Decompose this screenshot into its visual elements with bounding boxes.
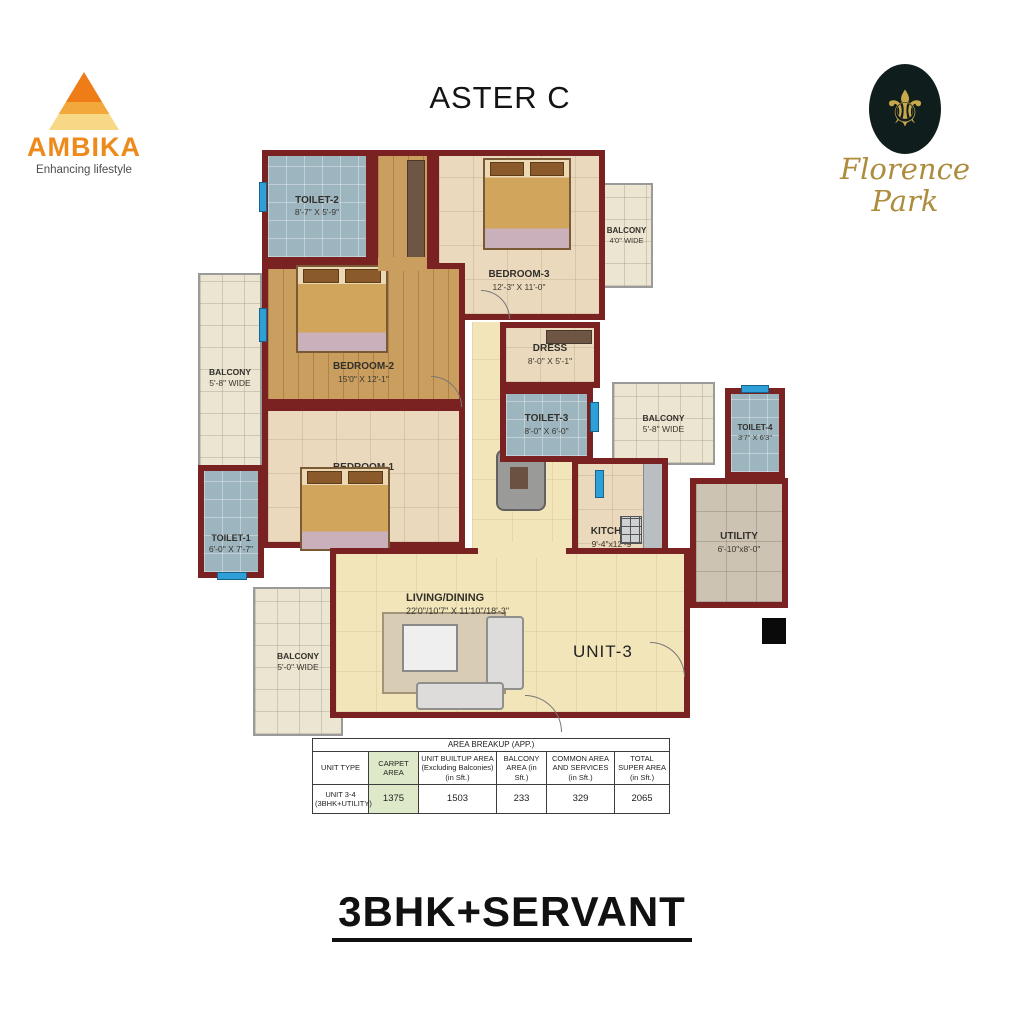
room-toilet-1: TOILET-1 6'-0" X 7'-7": [198, 465, 264, 578]
window-marker: [741, 385, 769, 393]
window-marker: [259, 308, 267, 342]
cell-unit-type: UNIT 3-4 (3BHK+UTILITY): [313, 785, 369, 814]
ambika-logo-text: AMBIKA: [14, 134, 154, 161]
plan-type-banner: 3BHK+SERVANT: [0, 888, 1024, 942]
room-toilet-4: TOILET-4 3'7" X 6'3": [725, 388, 785, 478]
cell-carpet-area: 1375: [369, 785, 419, 814]
room-utility: UTILITY 6'-10"x8'-0": [690, 478, 788, 608]
bed-icon: [300, 467, 390, 551]
col-unit-type: UNIT TYPE: [313, 752, 369, 785]
sofa-icon: [416, 682, 504, 710]
sofa-icon: [486, 616, 524, 690]
bed-icon: [483, 158, 571, 250]
table-header-row: UNIT TYPE CARPET AREA UNIT BUILTUP AREA …: [313, 752, 670, 785]
window-marker: [217, 572, 247, 580]
ambika-tagline: Enhancing lifestyle: [14, 164, 154, 176]
col-carpet-area: CARPET AREA: [369, 752, 419, 785]
wardrobe-icon: [546, 330, 592, 344]
shaft-block: [762, 618, 786, 644]
window-marker: [595, 470, 604, 498]
plan-type-text: 3BHK+SERVANT: [332, 888, 692, 942]
florence-oval-badge: ⚜: [869, 64, 941, 154]
room-toilet-3: TOILET-3 8'-0" X 6'-0": [500, 388, 593, 462]
room-living-dining: LIVING/DINING 22'0"/10'7" X 11'10"/18'-3…: [330, 548, 690, 718]
table-row: UNIT 3-4 (3BHK+UTILITY) 1375 1503 233 32…: [313, 785, 670, 814]
window-marker: [590, 402, 599, 432]
balcony-top-right: BALCONY 4'0" WIDE: [600, 183, 653, 288]
room-toilet-2: TOILET-2 8'-7" X 5'-9": [262, 150, 372, 263]
cell-common-area: 329: [547, 785, 615, 814]
cell-builtup-area: 1503: [419, 785, 497, 814]
col-balcony-area: BALCONY AREA (in Sft.): [497, 752, 547, 785]
florence-park-logo: ⚜ Florence Park: [810, 64, 1000, 218]
room-bedroom-1: BEDROOM-1 15'-0" X 10'-6": [262, 405, 465, 548]
area-breakup-table: AREA BREAKUP (APP.) UNIT TYPE CARPET ARE…: [312, 738, 670, 814]
table-title: AREA BREAKUP (APP.): [313, 739, 670, 752]
balcony-left: BALCONY 5'-8" WIDE: [198, 273, 262, 482]
floor-plan: BALCONY 4'0" WIDE BALCONY 5'-8" WIDE BAL…: [195, 140, 795, 740]
window-marker: [259, 182, 267, 212]
room-dress: DRESS 8'-0" X 5'-1": [500, 322, 600, 388]
col-builtup-area: UNIT BUILTUP AREA (Excluding Balconies) …: [419, 752, 497, 785]
stove-icon: [620, 516, 642, 544]
balcony-right: BALCONY 5'-8" WIDE: [612, 382, 715, 465]
bedroom-2-foyer: [372, 150, 433, 269]
wardrobe-icon: [407, 160, 425, 262]
fleur-de-lis-icon: ⚜: [883, 84, 928, 134]
florence-logo-text: Florence Park: [810, 154, 1000, 218]
unit-number-label: UNIT-3: [573, 642, 633, 662]
bed-icon: [296, 265, 388, 353]
col-common-area: COMMON AREA AND SERVICES (in Sft.): [547, 752, 615, 785]
tv-unit-icon: [402, 624, 458, 672]
col-total-super-area: TOTAL SUPER AREA (in Sft.): [615, 752, 670, 785]
cell-total-super-area: 2065: [615, 785, 670, 814]
cell-balcony-area: 233: [497, 785, 547, 814]
